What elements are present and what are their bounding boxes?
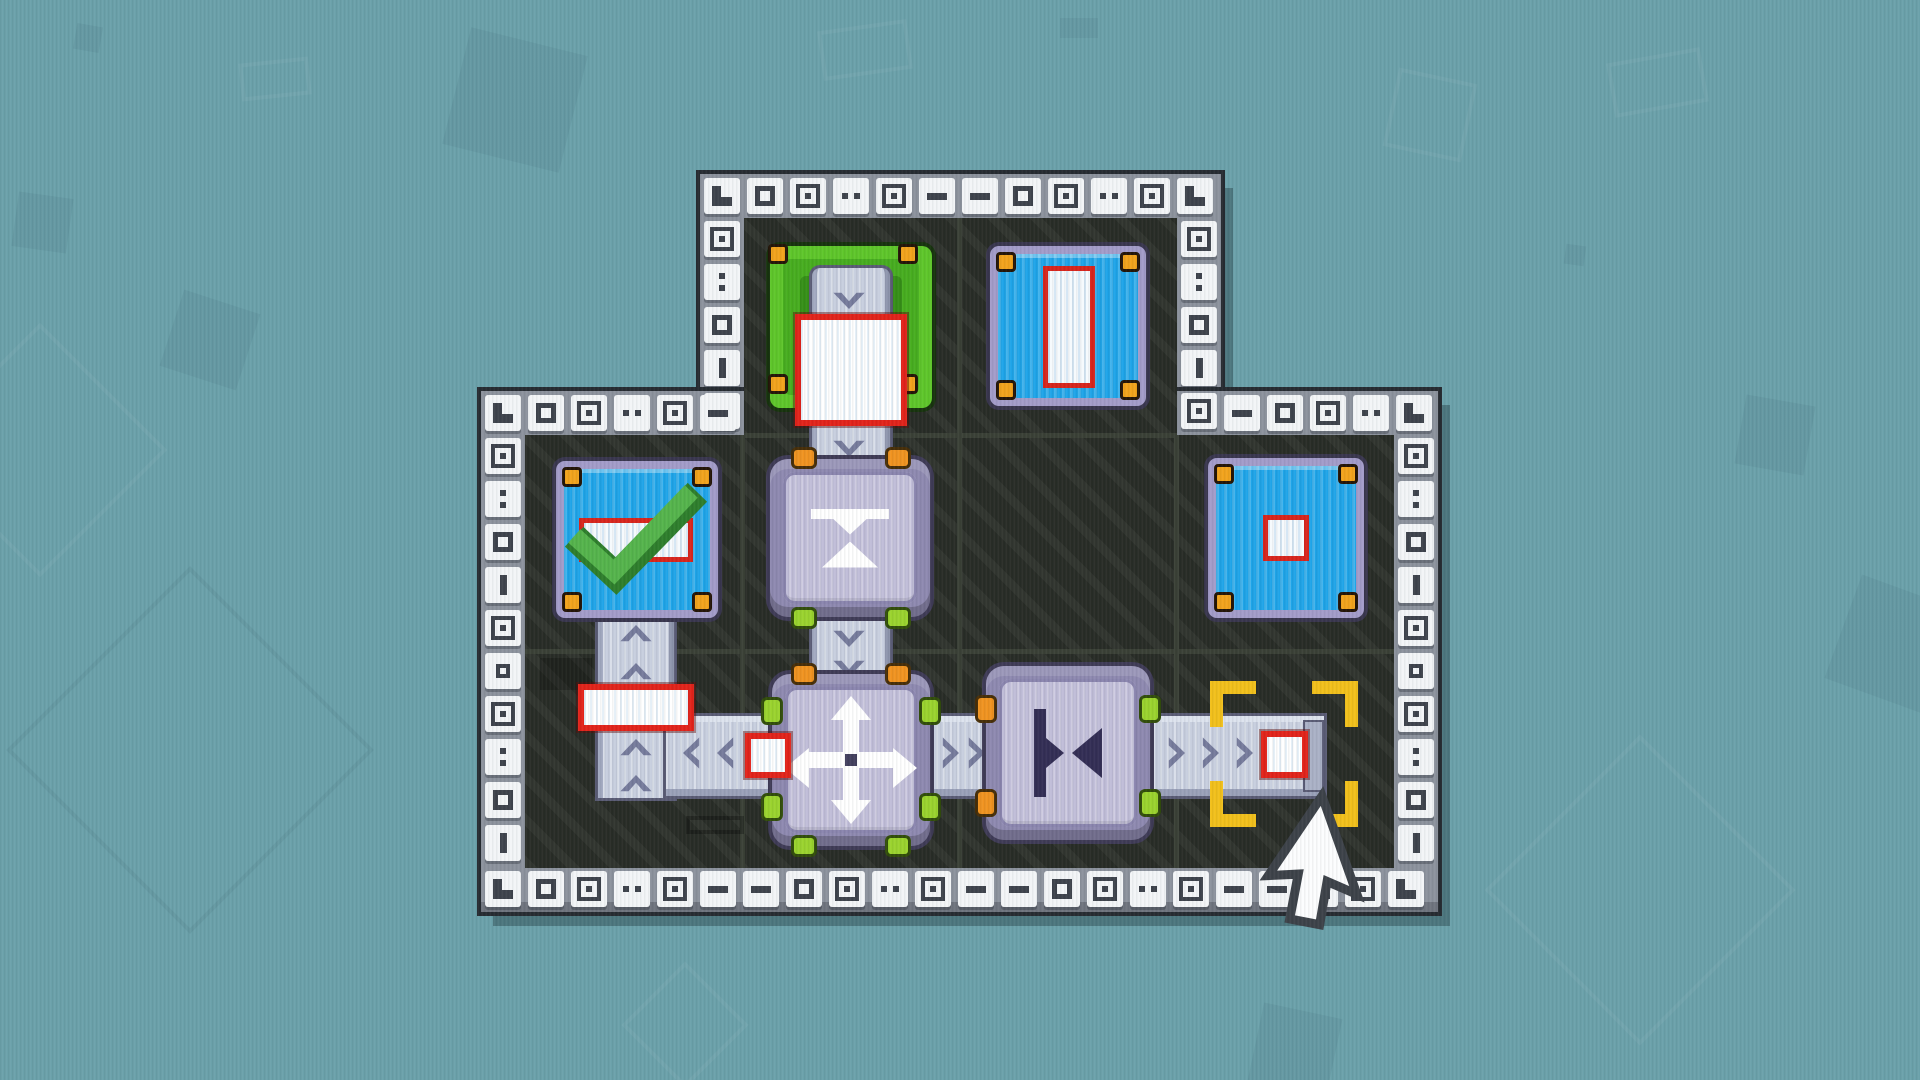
- squash-vertical-icon: [822, 509, 878, 568]
- border-tile: [1181, 221, 1217, 257]
- background-shape: [1248, 1003, 1343, 1080]
- border-glyph: [1413, 490, 1419, 496]
- border-tile: [876, 178, 912, 214]
- border-glyph: [623, 410, 629, 416]
- border-glyph: [536, 403, 556, 423]
- border-tile: [704, 350, 740, 386]
- border-glyph: [719, 358, 726, 378]
- machine-nub: [888, 838, 908, 854]
- border-tile: [1181, 264, 1217, 300]
- goal-icon-tall-rectangle: [1043, 266, 1095, 388]
- border-glyph: [751, 886, 771, 893]
- border-glyph: [1413, 748, 1419, 754]
- border-glyph: [536, 879, 556, 899]
- border-glyph: [500, 748, 506, 754]
- border-tile: [1001, 871, 1037, 907]
- background-shape: [238, 56, 312, 101]
- border-tile: [1005, 178, 1041, 214]
- border-glyph: [927, 193, 947, 200]
- border-glyph: [1185, 186, 1205, 206]
- border-glyph: [500, 575, 507, 595]
- border-glyph: [1093, 877, 1117, 901]
- border-tile: [1398, 739, 1434, 775]
- border-glyph: [1009, 886, 1029, 893]
- corner-bolt-icon: [768, 374, 788, 394]
- background-shape: [442, 27, 587, 172]
- border-tile: [485, 739, 521, 775]
- target-bracket-top-right: [1312, 681, 1358, 727]
- border-tile: [1353, 395, 1389, 431]
- border-tile: [1177, 178, 1213, 214]
- border-tile: [485, 524, 521, 560]
- background-shape: [621, 961, 748, 1080]
- corner-bolt-icon: [1214, 464, 1234, 484]
- border-tile: [1398, 653, 1434, 689]
- border-tile: [704, 264, 740, 300]
- border-glyph: [712, 315, 732, 335]
- background-shape: [0, 323, 167, 578]
- background-shape: [1606, 47, 1709, 118]
- border-tile: [958, 871, 994, 907]
- border-glyph: [881, 886, 887, 892]
- machine-mover[interactable]: [772, 674, 930, 846]
- background-shape: [817, 19, 913, 81]
- border-tile: [1087, 871, 1123, 907]
- arrows-four-way-icon: [793, 702, 909, 818]
- border-tile: [704, 307, 740, 343]
- border-tile: [485, 871, 521, 907]
- border-glyph: [493, 879, 513, 899]
- background-shape: [160, 290, 261, 391]
- box-wide-rectangle[interactable]: [578, 684, 694, 731]
- border-glyph: [663, 877, 687, 901]
- border-tile: [1224, 395, 1260, 431]
- border-tile: [747, 178, 783, 214]
- border-glyph: [1052, 879, 1072, 899]
- border-glyph: [794, 879, 814, 899]
- border-tile: [790, 178, 826, 214]
- game-stage: [0, 0, 1920, 1080]
- border-tile: [1091, 178, 1127, 214]
- box-small-square-right[interactable]: [1261, 731, 1308, 778]
- border-glyph: [755, 186, 775, 206]
- mouse-cursor-icon: [1322, 796, 1332, 806]
- border-glyph: [796, 184, 820, 208]
- machine-nub: [888, 450, 908, 466]
- border-glyph: [1140, 184, 1164, 208]
- border-glyph: [1275, 403, 1295, 423]
- border-glyph: [1139, 886, 1145, 892]
- border-tile: [1048, 178, 1084, 214]
- machine-nub: [978, 698, 994, 720]
- machine-nub: [764, 796, 780, 818]
- border-tile: [1396, 395, 1432, 431]
- border-glyph: [493, 790, 513, 810]
- border-glyph: [1406, 532, 1426, 552]
- border-glyph: [1100, 193, 1106, 199]
- border-tile: [1398, 481, 1434, 517]
- machine-nub: [794, 838, 814, 854]
- border-glyph: [970, 193, 990, 200]
- target-bracket-top-left: [1210, 681, 1256, 727]
- border-tile: [1398, 610, 1434, 646]
- border-glyph: [1406, 790, 1426, 810]
- goal-icon-small-square: [1263, 515, 1309, 561]
- corner-bolt-icon: [996, 380, 1016, 400]
- border-glyph: [1196, 273, 1202, 279]
- border-tile: [485, 610, 521, 646]
- border-tile: [485, 567, 521, 603]
- machine-nub: [764, 700, 780, 722]
- machine-nub: [794, 610, 814, 626]
- border-tile: [872, 871, 908, 907]
- corner-bolt-icon: [692, 592, 712, 612]
- border-glyph: [577, 877, 601, 901]
- border-tile: [485, 395, 521, 431]
- border-tile: [1130, 871, 1166, 907]
- machine-nub: [794, 666, 814, 682]
- border-glyph: [921, 877, 945, 901]
- machine-nub: [888, 666, 908, 682]
- box-small-square-left[interactable]: [745, 733, 791, 778]
- border-tile: [1388, 871, 1424, 907]
- corner-bolt-icon: [1338, 592, 1358, 612]
- border-glyph: [491, 616, 515, 640]
- border-tile: [528, 871, 564, 907]
- border-tile: [614, 395, 650, 431]
- border-tile: [1181, 393, 1217, 429]
- border-tile: [919, 178, 955, 214]
- background-shape: [1564, 244, 1587, 267]
- border-glyph: [1224, 886, 1244, 893]
- machine-nub: [794, 450, 814, 466]
- background-shape: [1060, 18, 1098, 38]
- border-glyph: [1187, 227, 1211, 251]
- border-glyph: [835, 877, 859, 901]
- border-glyph: [500, 490, 506, 496]
- border-tile: [833, 178, 869, 214]
- border-glyph: [1316, 401, 1340, 425]
- machine-nub: [922, 796, 938, 818]
- border-glyph: [1232, 410, 1252, 417]
- border-glyph: [708, 886, 728, 893]
- border-tile: [1310, 395, 1346, 431]
- border-tile: [485, 438, 521, 474]
- border-tile: [829, 871, 865, 907]
- border-glyph: [1413, 575, 1420, 595]
- border-tile: [1398, 567, 1434, 603]
- border-tile: [528, 395, 564, 431]
- border-glyph: [842, 193, 848, 199]
- border-tile: [1216, 871, 1252, 907]
- border-tile: [1398, 696, 1434, 732]
- border-glyph: [663, 401, 687, 425]
- border-tile: [485, 782, 521, 818]
- machine-press-horizontal[interactable]: [986, 666, 1150, 840]
- border-tile: [657, 871, 693, 907]
- border-tile: [704, 221, 740, 257]
- corner-bolt-icon: [1120, 252, 1140, 272]
- border-tile: [571, 871, 607, 907]
- corner-bolt-icon: [996, 252, 1016, 272]
- border-glyph: [1196, 358, 1203, 378]
- box-large-square[interactable]: [795, 314, 907, 426]
- border-glyph: [491, 702, 515, 726]
- border-tile: [962, 178, 998, 214]
- border-tile: [743, 871, 779, 907]
- border-glyph: [500, 833, 507, 853]
- checkmark-icon: [562, 482, 707, 594]
- border-glyph: [623, 886, 629, 892]
- border-glyph: [1404, 403, 1424, 423]
- border-tile: [1181, 350, 1217, 386]
- border-glyph: [1404, 702, 1428, 726]
- border-tile: [485, 825, 521, 861]
- press-vertical-plate: [783, 472, 917, 604]
- background-shape: [1825, 575, 1920, 716]
- squash-horizontal-icon: [1034, 728, 1102, 778]
- border-tile: [786, 871, 822, 907]
- background-shape: [1734, 394, 1815, 475]
- border-glyph: [966, 886, 986, 893]
- mover-plate: [785, 687, 917, 833]
- border-glyph: [710, 227, 734, 251]
- machine-nub: [922, 700, 938, 722]
- border-glyph: [1396, 879, 1416, 899]
- border-glyph: [493, 403, 513, 423]
- floor-stain: [686, 816, 744, 834]
- border-tile: [704, 178, 740, 214]
- machine-nub: [1142, 698, 1158, 720]
- machine-nub: [888, 610, 908, 626]
- border-glyph: [882, 184, 906, 208]
- border-tile: [1181, 307, 1217, 343]
- background-shape: [73, 23, 103, 53]
- border-glyph: [719, 273, 725, 279]
- machine-nub: [1142, 792, 1158, 814]
- border-glyph: [1413, 833, 1420, 853]
- border-tile: [915, 871, 951, 907]
- border-glyph: [1187, 399, 1211, 423]
- border-glyph: [1362, 410, 1368, 416]
- border-glyph: [577, 401, 601, 425]
- border-tile: [614, 871, 650, 907]
- background-shape: [11, 191, 73, 253]
- border-tile: [700, 871, 736, 907]
- corner-bolt-icon: [1338, 464, 1358, 484]
- press-horizontal-plate: [999, 679, 1137, 827]
- border-tile: [657, 395, 693, 431]
- border-glyph: [712, 186, 732, 206]
- border-tile: [485, 696, 521, 732]
- border-tile: [1044, 871, 1080, 907]
- machine-press-vertical[interactable]: [770, 459, 930, 617]
- corner-bolt-icon: [898, 244, 918, 264]
- border-glyph: [708, 410, 728, 417]
- background-shape: [1383, 68, 1478, 163]
- border-tile: [571, 395, 607, 431]
- border-tile: [1173, 871, 1209, 907]
- border-tile: [1398, 782, 1434, 818]
- border-glyph: [1054, 184, 1078, 208]
- border-tile: [1398, 825, 1434, 861]
- border-tile: [485, 481, 521, 517]
- machine-nub: [978, 792, 994, 814]
- border-glyph: [1404, 444, 1428, 468]
- border-tile: [1134, 178, 1170, 214]
- corner-bolt-icon: [1214, 592, 1234, 612]
- border-glyph: [1179, 877, 1203, 901]
- border-tile: [1398, 524, 1434, 560]
- target-bracket-bottom-left: [1210, 781, 1256, 827]
- border-glyph: [1404, 616, 1428, 640]
- border-glyph: [1267, 886, 1287, 893]
- corner-bolt-icon: [768, 244, 788, 264]
- background-shape: [6, 566, 374, 934]
- border-tile: [700, 395, 736, 431]
- border-tile: [1267, 395, 1303, 431]
- border-glyph: [1013, 186, 1033, 206]
- border-glyph: [1189, 315, 1209, 335]
- background-shape: [1484, 734, 1795, 1045]
- corner-bolt-icon: [1120, 380, 1140, 400]
- border-glyph: [491, 444, 515, 468]
- corner-bolt-icon: [562, 592, 582, 612]
- grid-line: [744, 433, 1177, 438]
- border-glyph: [1409, 664, 1423, 678]
- border-tile: [1398, 438, 1434, 474]
- border-glyph: [493, 532, 513, 552]
- border-glyph: [496, 664, 510, 678]
- border-tile: [485, 653, 521, 689]
